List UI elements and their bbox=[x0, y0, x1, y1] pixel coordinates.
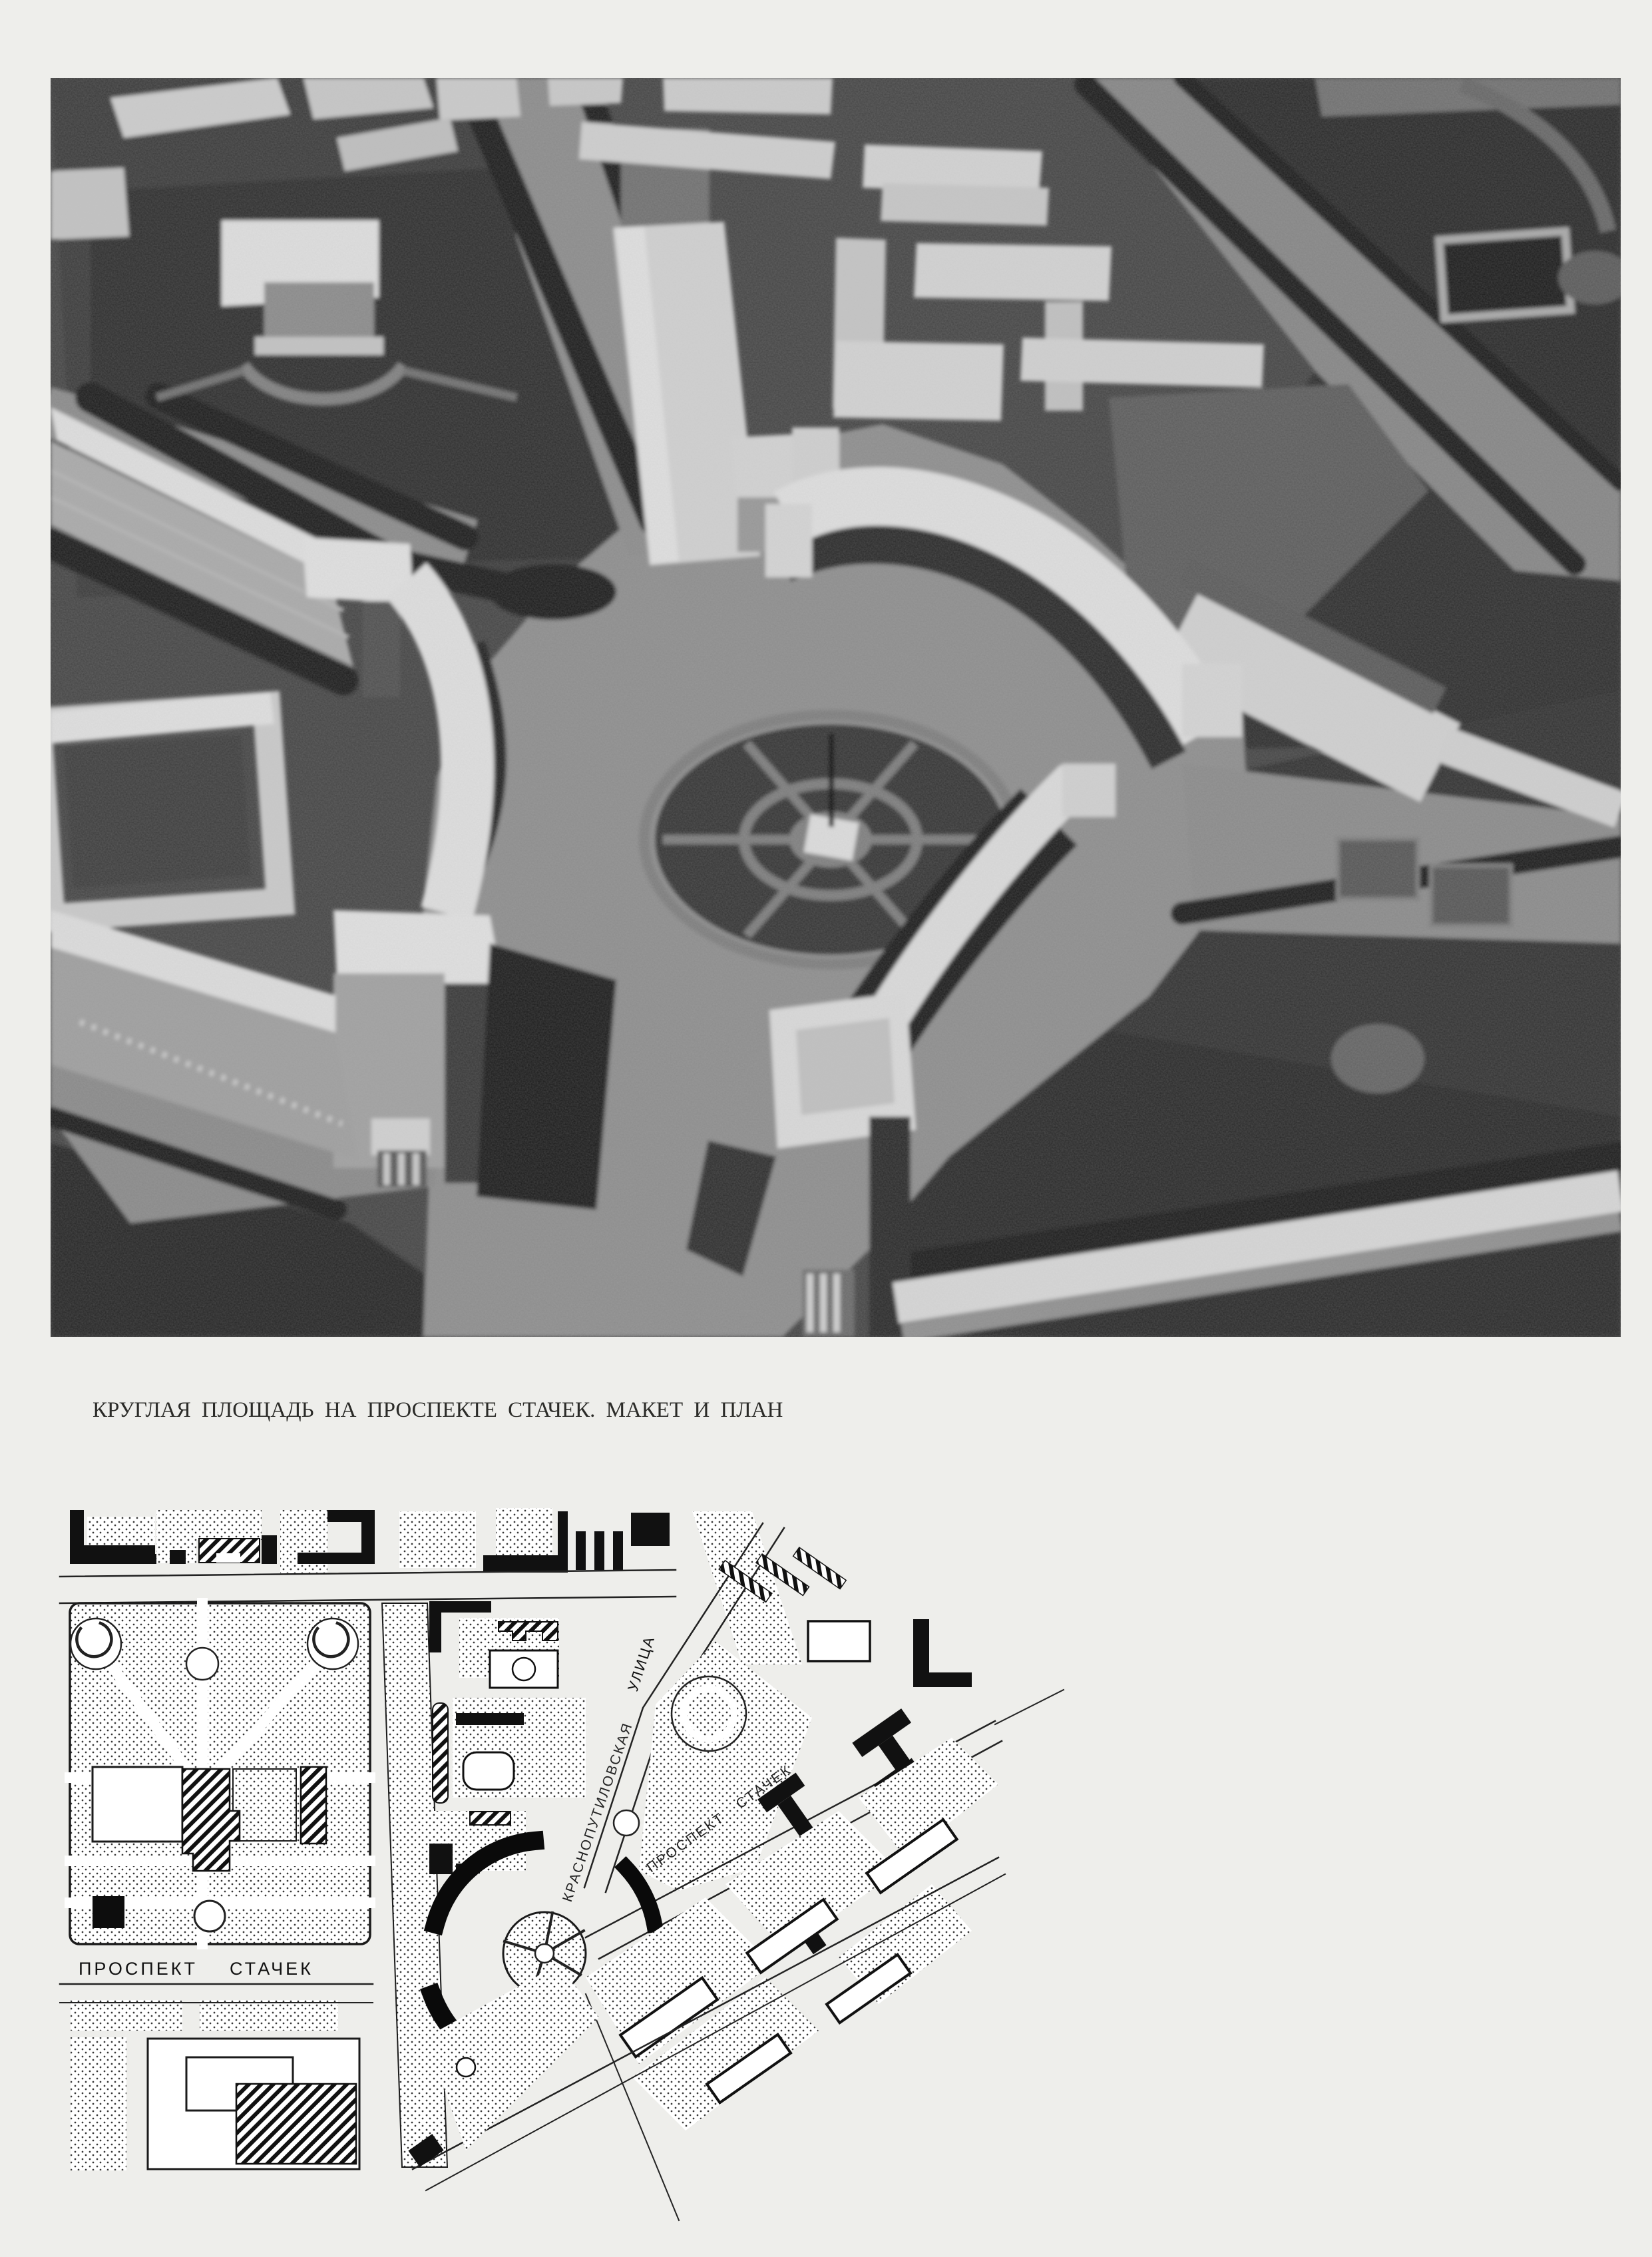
svg-text:УЛИЦА: УЛИЦА bbox=[624, 1633, 658, 1693]
svg-text:ПРОСПЕКТ: ПРОСПЕКТ bbox=[79, 1959, 198, 1979]
svg-text:СТАЧЕК: СТАЧЕК bbox=[230, 1959, 313, 1979]
